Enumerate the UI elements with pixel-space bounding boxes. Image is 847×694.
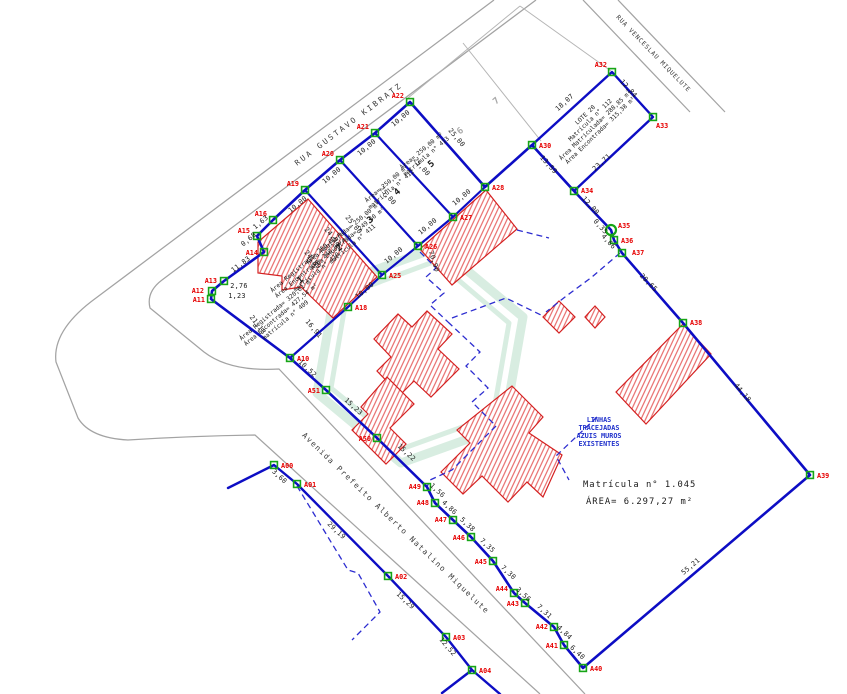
vertex-label-A25: A25 [389,272,401,280]
vertex-label-A21: A21 [357,123,369,131]
gray-lot-line [463,43,541,141]
parcel-area-text: ÁREA= 6.297,27 m² [586,495,693,507]
edge-measurement-label: 2,76 [230,282,248,290]
vertex-label-A37: A37 [632,249,644,257]
existing-wall-dashed-line [546,253,620,312]
vertex-label-A51: A51 [308,387,320,395]
vertex-label-A40: A40 [590,665,602,673]
vertex-label-A18: A18 [355,304,367,312]
legend-note-line: EXISTENTES [579,440,620,448]
vertex-label-A33: A33 [656,122,668,130]
vertex-label-A03: A03 [453,634,465,642]
legend-note-line: AZUIS MUROS [576,432,621,440]
vertex-label-A27: A27 [460,214,472,222]
edge-measurement-label: 12,00 [580,195,601,217]
vertex-label-A28: A28 [492,184,504,192]
vertex-label-A48: A48 [417,499,429,507]
vertex-label-A39: A39 [817,472,829,480]
building-footprint [585,306,605,328]
vertex-label-A38: A38 [690,319,702,327]
vertex-label-A01: A01 [304,481,316,489]
edge-measurement-label: 5,38 [458,516,476,534]
vertex-label-A50: A50 [359,435,371,443]
vertex-label-A46: A46 [453,534,465,542]
edge-measurement-label: 44,18 [732,382,752,404]
edge-measurement-label: 55,21 [680,556,702,576]
vertex-label-A49: A49 [409,483,421,491]
edge-measurement-label: 4,86 [440,499,458,517]
vertex-label-A00: A00 [281,462,293,470]
parcel-matricula-text: Matrícula n° 1.045 [583,480,696,490]
existing-wall-dashed-line [297,486,380,640]
vertex-label-A19: A19 [287,180,299,188]
edge-measurement-label: 7,35 [478,537,496,555]
vertex-label-A36: A36 [621,237,633,245]
edge-measurement-label: 23,71 [591,152,613,173]
site-plan-drawing: 67A00A01A02A03A04A10A11A12A13A14A15A16A1… [0,0,847,694]
vertex-label-A42: A42 [536,623,548,631]
legend-note-block: LINHASTRACEJADASAZUIS MUROSEXISTENTES [576,416,621,448]
property-boundary-line [442,670,472,693]
edge-measurement-label: 10,00 [417,216,439,236]
vertex-label-A47: A47 [435,516,447,524]
existing-wall-dashed-line [517,230,549,238]
edge-measurement-label: 1,23 [228,292,246,300]
cadastral-plan-page: 67A00A01A02A03A04A10A11A12A13A14A15A16A1… [0,0,847,694]
edge-measurement-label: 3,60 [270,468,288,486]
vertex-label-A02: A02 [395,573,407,581]
parcel-title-block: Matrícula n° 1.045ÁREA= 6.297,27 m² [583,480,696,507]
lote20-description-block: LOTE 20Matrícula n° 112Área Matriculada=… [548,79,638,167]
vertex-label-A43: A43 [507,600,519,608]
vertex-label-A45: A45 [475,558,487,566]
vertex-label-A35: A35 [618,222,630,230]
vertex-label-A34: A34 [581,187,593,195]
edge-measurement-label: 20,65 [638,272,659,293]
vertex-label-A41: A41 [546,642,558,650]
vertex-label-A13: A13 [205,277,217,285]
edge-measurement-label: 4,66 [600,232,618,250]
building-footprint [543,301,575,333]
vertex-label-A04: A04 [479,667,491,675]
vertex-label-A30: A30 [539,142,551,150]
edge-measurement-label: 13,59 [538,154,559,176]
vertex-label-A20: A20 [322,150,334,158]
vertex-label-A11: A11 [193,296,205,304]
vertex-label-A44: A44 [496,585,508,593]
gray-lot-number: 7 [491,96,502,107]
legend-note-line: TRACEJADAS [579,424,620,432]
legend-note-line: LINHAS [587,416,612,424]
vertex-label-A12: A12 [192,287,204,295]
vertex-label-A32: A32 [595,61,607,69]
